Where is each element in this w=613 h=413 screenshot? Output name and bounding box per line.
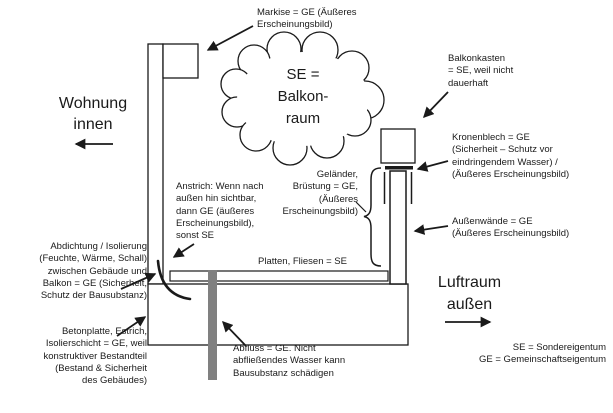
anstrich-label: Anstrich: Wenn nach außen hin sichtbar, … (176, 181, 281, 242)
abfluss-label: Abfluss = GE. Nicht abfließendes Wasser … (233, 343, 363, 380)
kronenblech-cap (385, 166, 413, 170)
betonplatte-label: Betonplatte, Estrich, Isolierschicht = G… (2, 326, 147, 387)
tiles-row (170, 271, 388, 281)
abdichtung-label: Abdichtung / Isolierung (Feuchte, Wärme,… (2, 241, 147, 302)
platten-fliesen-label: Platten, Fliesen = SE (245, 256, 360, 268)
legend: SE = Sondereigentum GE = Gemeinschaftsei… (400, 342, 606, 367)
kronenblech-label: Kronenblech = GE (Sicherheit – Schutz vo… (452, 132, 580, 181)
balcony-slab (148, 284, 408, 345)
gelaender-brace (364, 168, 381, 266)
balkonkasten-arrow (424, 92, 448, 117)
aussenwaende-label: Außenwände = GE (Äußeres Erscheinungsbil… (452, 216, 580, 241)
markise-box (163, 44, 198, 78)
drain-pipe (208, 270, 217, 380)
balkonkasten-box (381, 129, 415, 163)
left-wall (148, 44, 163, 284)
diagram-canvas: Markise = GE (Äußeres Erscheinungsbild) … (0, 0, 613, 413)
markise-label: Markise = GE (Äußeres Erscheinungsbild) (257, 7, 387, 32)
anstrich-arrow (174, 244, 194, 257)
kronenblech-arrow (418, 161, 448, 169)
parapet-wall (390, 171, 406, 284)
luftraum-aussen-label: Luftraum außen (412, 272, 527, 316)
balkonraum-cloud-label: SE = Balkon- raum (245, 64, 361, 130)
balkonkasten-label: Balkonkasten = SE, weil nicht dauerhaft (448, 53, 558, 90)
aussenwaende-arrow (415, 226, 448, 231)
wohnung-innen-label: Wohnung innen (33, 93, 153, 135)
